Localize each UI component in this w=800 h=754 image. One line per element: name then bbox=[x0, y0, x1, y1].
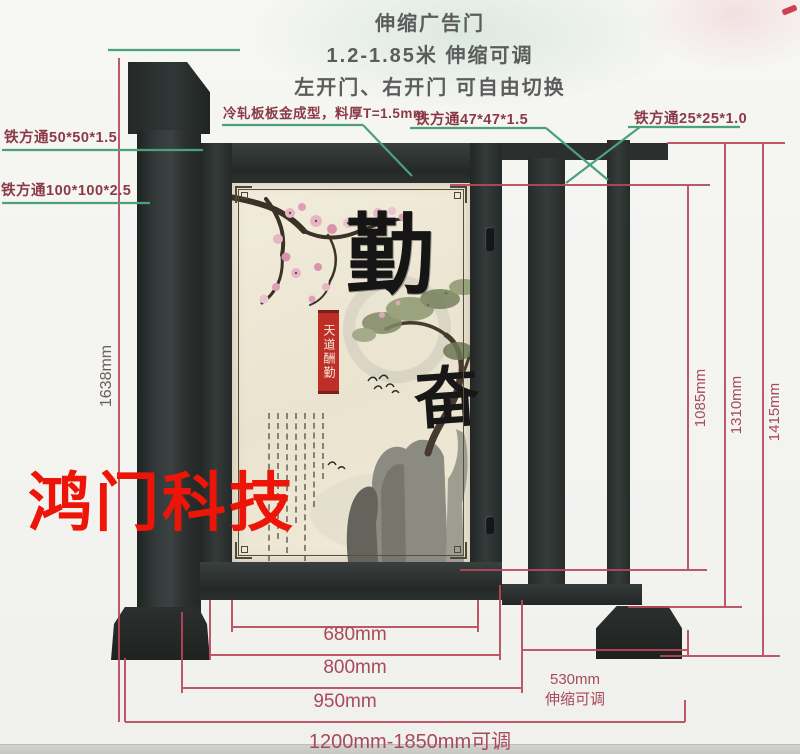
callout-tube-25: 铁方通25*25*1.0 bbox=[634, 107, 747, 128]
watermark: 鸿门科技 bbox=[28, 452, 296, 544]
dim-overall-width: 1200mm-1850mm可调 bbox=[265, 725, 555, 754]
header: 伸缩广告门 1.2-1.85米 伸缩可调 左开门、右开门 可自由切换 bbox=[230, 8, 630, 104]
callout-tube-50: 铁方通50*50*1.5 bbox=[4, 126, 117, 147]
header-subtitle2: 左开门、右开门 可自由切换 bbox=[230, 72, 630, 104]
page-title: 伸缩广告门 bbox=[230, 8, 630, 40]
dim-door-width: 800mm bbox=[290, 657, 420, 679]
callout-tube-47: 铁方通47*47*1.5 bbox=[415, 108, 528, 129]
callout-cold-rolled: 冷轧板板金成型，料厚T=1.5mm bbox=[223, 102, 425, 122]
dim-frame-height: 1310mm bbox=[728, 365, 746, 445]
dim-pillar-height: 1638mm bbox=[98, 336, 116, 416]
callout-tube-100: 铁方通100*100*2.5 bbox=[1, 179, 131, 200]
dim-leaf-width: 950mm bbox=[280, 691, 410, 713]
product-diagram: 天道酬勤 勤 奋 伸缩广告门 1.2-1.85米 伸缩可调 bbox=[0, 0, 800, 754]
dim-telescopic-note: 伸缩可调 bbox=[528, 688, 622, 709]
dim-opening-height: 1085mm bbox=[692, 358, 710, 438]
dim-telescopic-width: 530mm bbox=[535, 671, 615, 688]
dim-overall-height: 1415mm bbox=[766, 372, 784, 452]
header-subtitle: 1.2-1.85米 伸缩可调 bbox=[230, 40, 630, 72]
dim-panel-width: 680mm bbox=[290, 624, 420, 646]
